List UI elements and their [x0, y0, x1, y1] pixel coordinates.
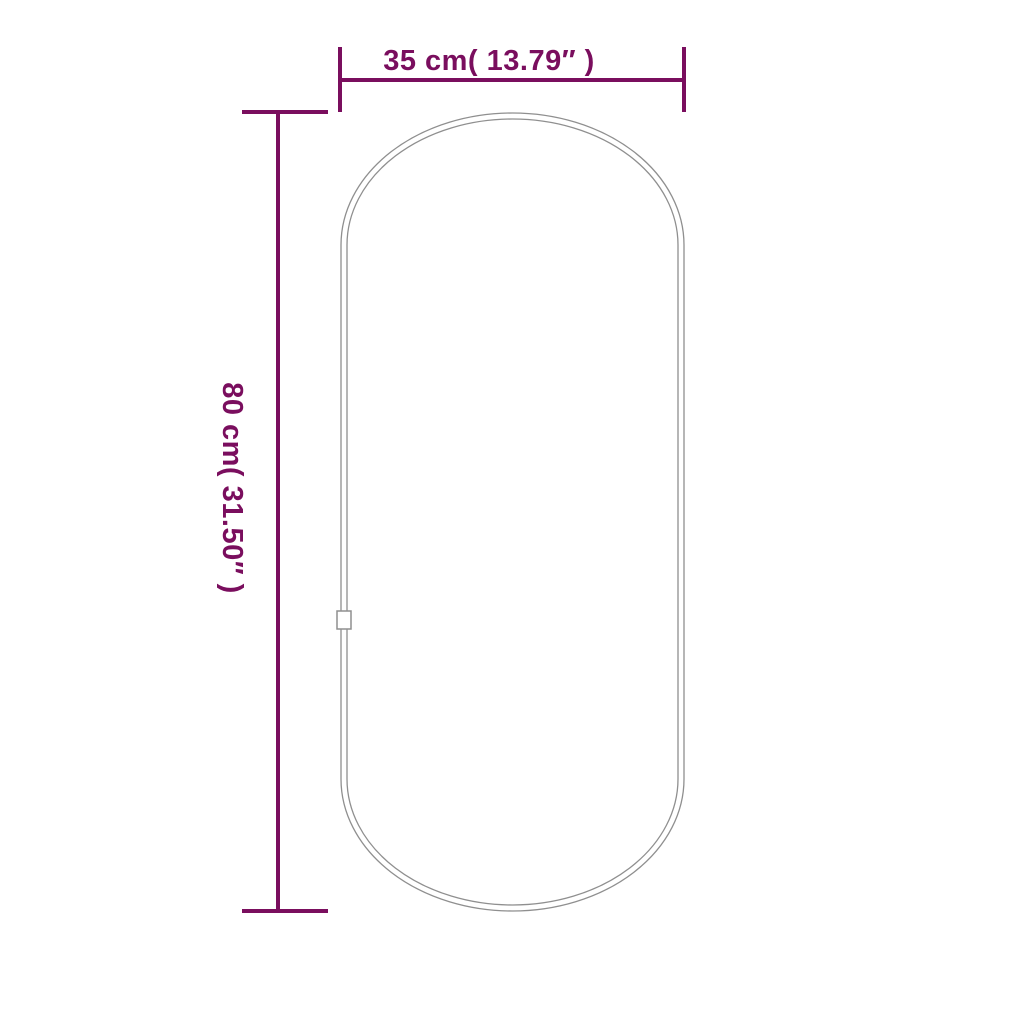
mirror-outline-outer — [341, 113, 684, 911]
width-dimension-label: 35 cm( 13.79″ ) — [383, 45, 595, 77]
height-dimension-label: 80 cm( 31.50″ ) — [216, 382, 248, 594]
mirror-outline-inner — [347, 119, 678, 905]
mounting-clip-icon — [337, 611, 351, 629]
dimension-diagram: 35 cm( 13.79″ ) 80 cm( 31.50″ ) — [0, 0, 1024, 1024]
dimension-diagram-canvas: 35 cm( 13.79″ ) 80 cm( 31.50″ ) — [0, 0, 1024, 1024]
